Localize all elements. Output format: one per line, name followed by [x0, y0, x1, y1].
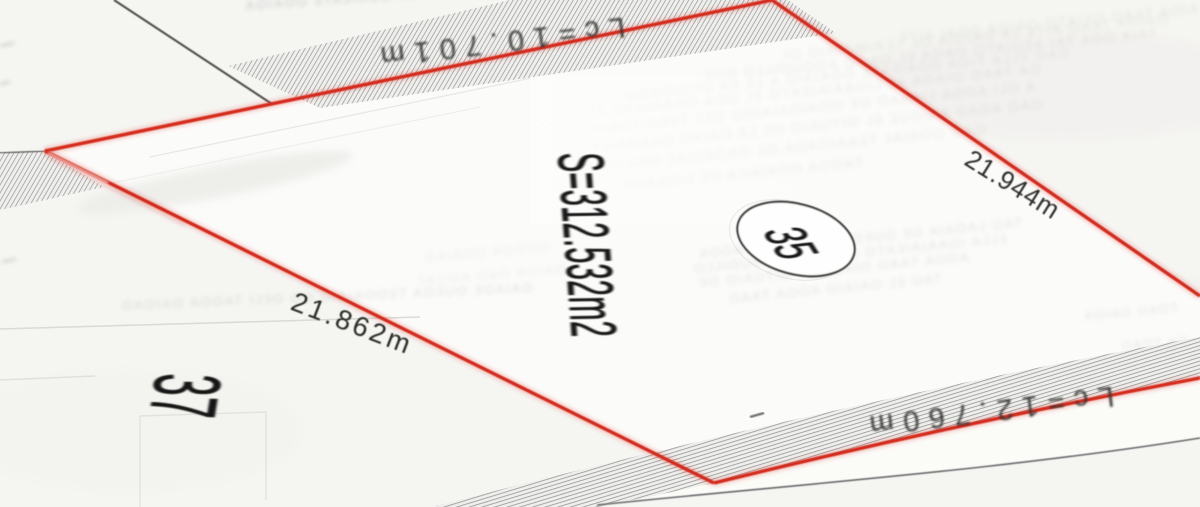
svg-text:37: 37 — [128, 372, 239, 419]
svg-text:S=312.532m2: S=312.532m2 — [544, 152, 630, 338]
